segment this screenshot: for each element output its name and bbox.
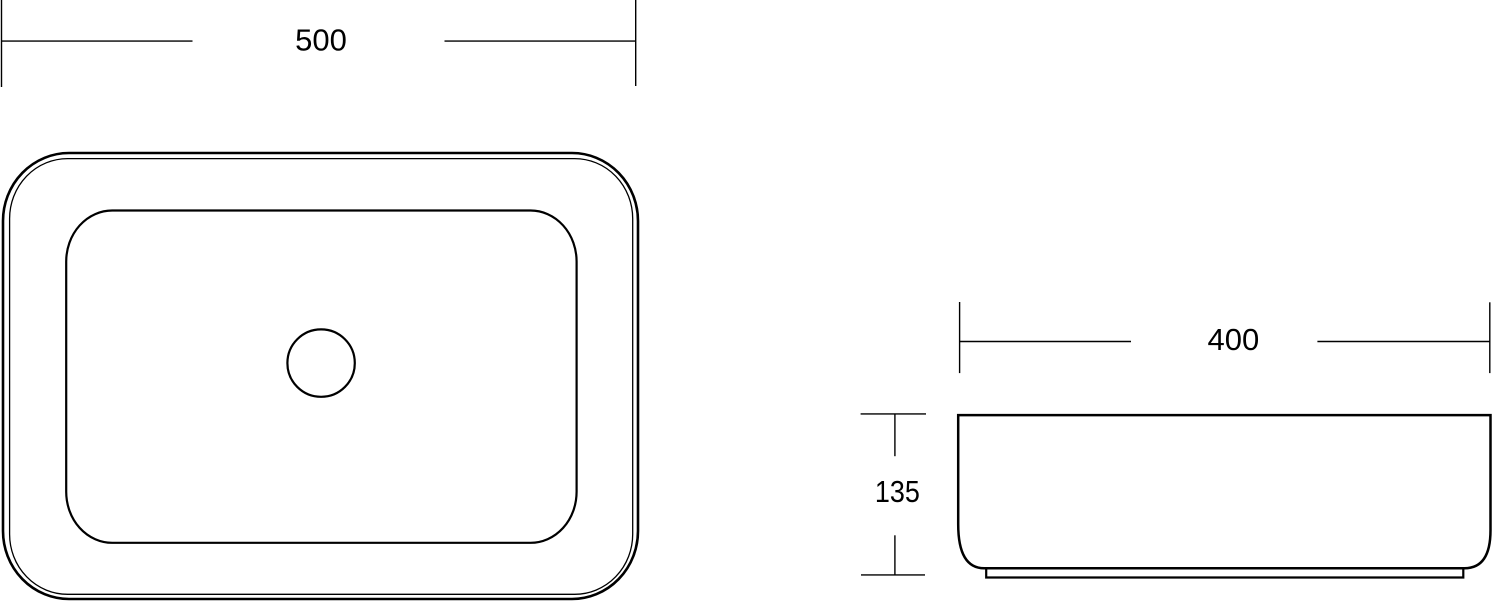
svg-text:500: 500 (295, 23, 347, 58)
svg-text:135: 135 (875, 474, 920, 509)
svg-text:400: 400 (1208, 322, 1260, 357)
